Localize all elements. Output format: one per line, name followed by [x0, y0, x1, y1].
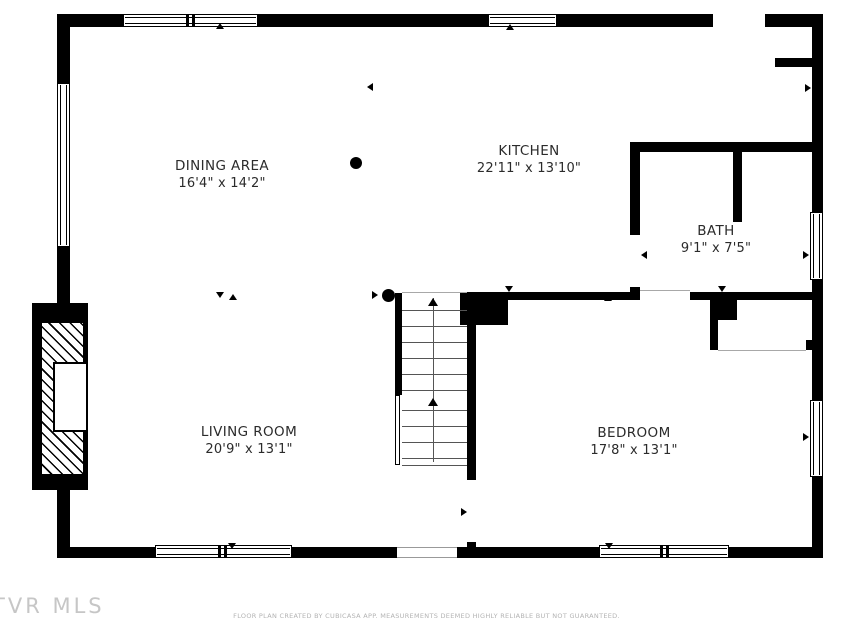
- closet-wall: [710, 320, 718, 350]
- wall: [457, 547, 599, 558]
- window: [488, 14, 557, 27]
- room-dimensions: 20'9" x 13'1": [201, 441, 297, 458]
- stair-tread: [402, 410, 467, 411]
- floor-plan-canvas: DINING AREA 16'4" x 14'2" KITCHEN 22'11"…: [0, 0, 853, 640]
- direction-arrow-icon: [372, 291, 378, 299]
- room-dimensions: 16'4" x 14'2": [175, 175, 269, 192]
- direction-arrow-icon: [64, 508, 70, 516]
- stair-tread: [402, 310, 467, 311]
- direction-arrow-icon: [505, 286, 513, 292]
- stair-rail: [395, 395, 400, 465]
- direction-arrow-icon: [641, 251, 647, 259]
- closet-front-line: [718, 350, 806, 351]
- room-name: BEDROOM: [590, 424, 677, 442]
- stair-tread: [402, 342, 467, 343]
- room-name: LIVING ROOM: [201, 423, 297, 441]
- wall: [733, 152, 742, 222]
- closet-wall: [806, 340, 812, 350]
- direction-arrow-icon: [216, 292, 224, 298]
- room-name: BATH: [681, 222, 751, 240]
- window: [599, 545, 729, 558]
- wall: [395, 293, 402, 395]
- direction-arrow-icon: [718, 286, 726, 292]
- stairs-up-arrow-icon: [428, 398, 438, 406]
- room-dimensions: 9'1" x 7'5": [681, 240, 751, 257]
- direction-arrow-icon: [64, 287, 70, 295]
- direction-arrow-icon: [228, 543, 236, 549]
- open-boundary-line: [640, 290, 690, 291]
- stair-tread: [402, 358, 467, 359]
- window: [810, 212, 823, 280]
- room-label-living: LIVING ROOM 20'9" x 13'1": [201, 423, 297, 458]
- wall: [812, 477, 823, 558]
- column-dot: [350, 157, 362, 169]
- window-mullion: [660, 546, 663, 557]
- wall: [258, 14, 488, 27]
- stair-center-line: [433, 298, 434, 462]
- window: [810, 400, 823, 477]
- room-dimensions: 22'11" x 13'10": [477, 160, 581, 177]
- window: [57, 83, 70, 247]
- room-label-kitchen: KITCHEN 22'11" x 13'10": [477, 142, 581, 177]
- window: [123, 14, 258, 27]
- direction-arrow-icon: [604, 295, 612, 301]
- window-mullion: [186, 15, 189, 26]
- wall: [812, 14, 823, 212]
- direction-arrow-icon: [605, 543, 613, 549]
- window-mullion: [224, 546, 227, 557]
- direction-arrow-icon: [216, 23, 224, 29]
- wall: [57, 14, 70, 83]
- direction-arrow-icon: [803, 433, 809, 441]
- room-label-bedroom: BEDROOM 17'8" x 13'1": [590, 424, 677, 459]
- column-dot: [382, 289, 395, 302]
- direction-arrow-icon: [718, 145, 726, 151]
- window-mullion: [666, 546, 669, 557]
- room-label-dining: DINING AREA 16'4" x 14'2": [175, 157, 269, 192]
- stairs-up-arrow-icon: [428, 298, 438, 306]
- wall: [690, 292, 812, 300]
- wall: [630, 142, 640, 235]
- room-name: KITCHEN: [477, 142, 581, 160]
- door-opening: [397, 547, 457, 558]
- stair-tread: [402, 326, 467, 327]
- footer-disclaimer: FLOOR PLAN CREATED BY CUBICASA APP. MEAS…: [233, 612, 620, 620]
- stair-tread: [402, 426, 467, 427]
- room-name: DINING AREA: [175, 157, 269, 175]
- stair-tread: [402, 390, 467, 391]
- stair-tread: [402, 458, 467, 459]
- direction-arrow-icon: [229, 294, 237, 300]
- direction-arrow-icon: [367, 83, 373, 91]
- window-mullion: [218, 546, 221, 557]
- direction-arrow-icon: [803, 251, 809, 259]
- wall: [467, 542, 476, 558]
- fireplace-firebox: [53, 362, 88, 432]
- closet-wall: [710, 300, 737, 320]
- direction-arrow-icon: [805, 84, 811, 92]
- room-dimensions: 17'8" x 13'1": [590, 442, 677, 459]
- wall: [812, 280, 823, 400]
- mls-watermark: TVR MLS: [0, 594, 105, 618]
- wall: [775, 58, 813, 67]
- wall: [557, 14, 713, 27]
- direction-arrow-icon: [506, 24, 514, 30]
- wall: [467, 292, 476, 480]
- open-boundary-line: [402, 292, 467, 293]
- direction-arrow-icon: [461, 508, 467, 516]
- window-mullion: [192, 15, 195, 26]
- stair-tread: [402, 465, 467, 466]
- stair-tread: [402, 442, 467, 443]
- stair-tread: [402, 374, 467, 375]
- wall: [292, 547, 397, 558]
- room-label-bath: BATH 9'1" x 7'5": [681, 222, 751, 257]
- wall: [57, 547, 155, 558]
- wall: [729, 547, 823, 558]
